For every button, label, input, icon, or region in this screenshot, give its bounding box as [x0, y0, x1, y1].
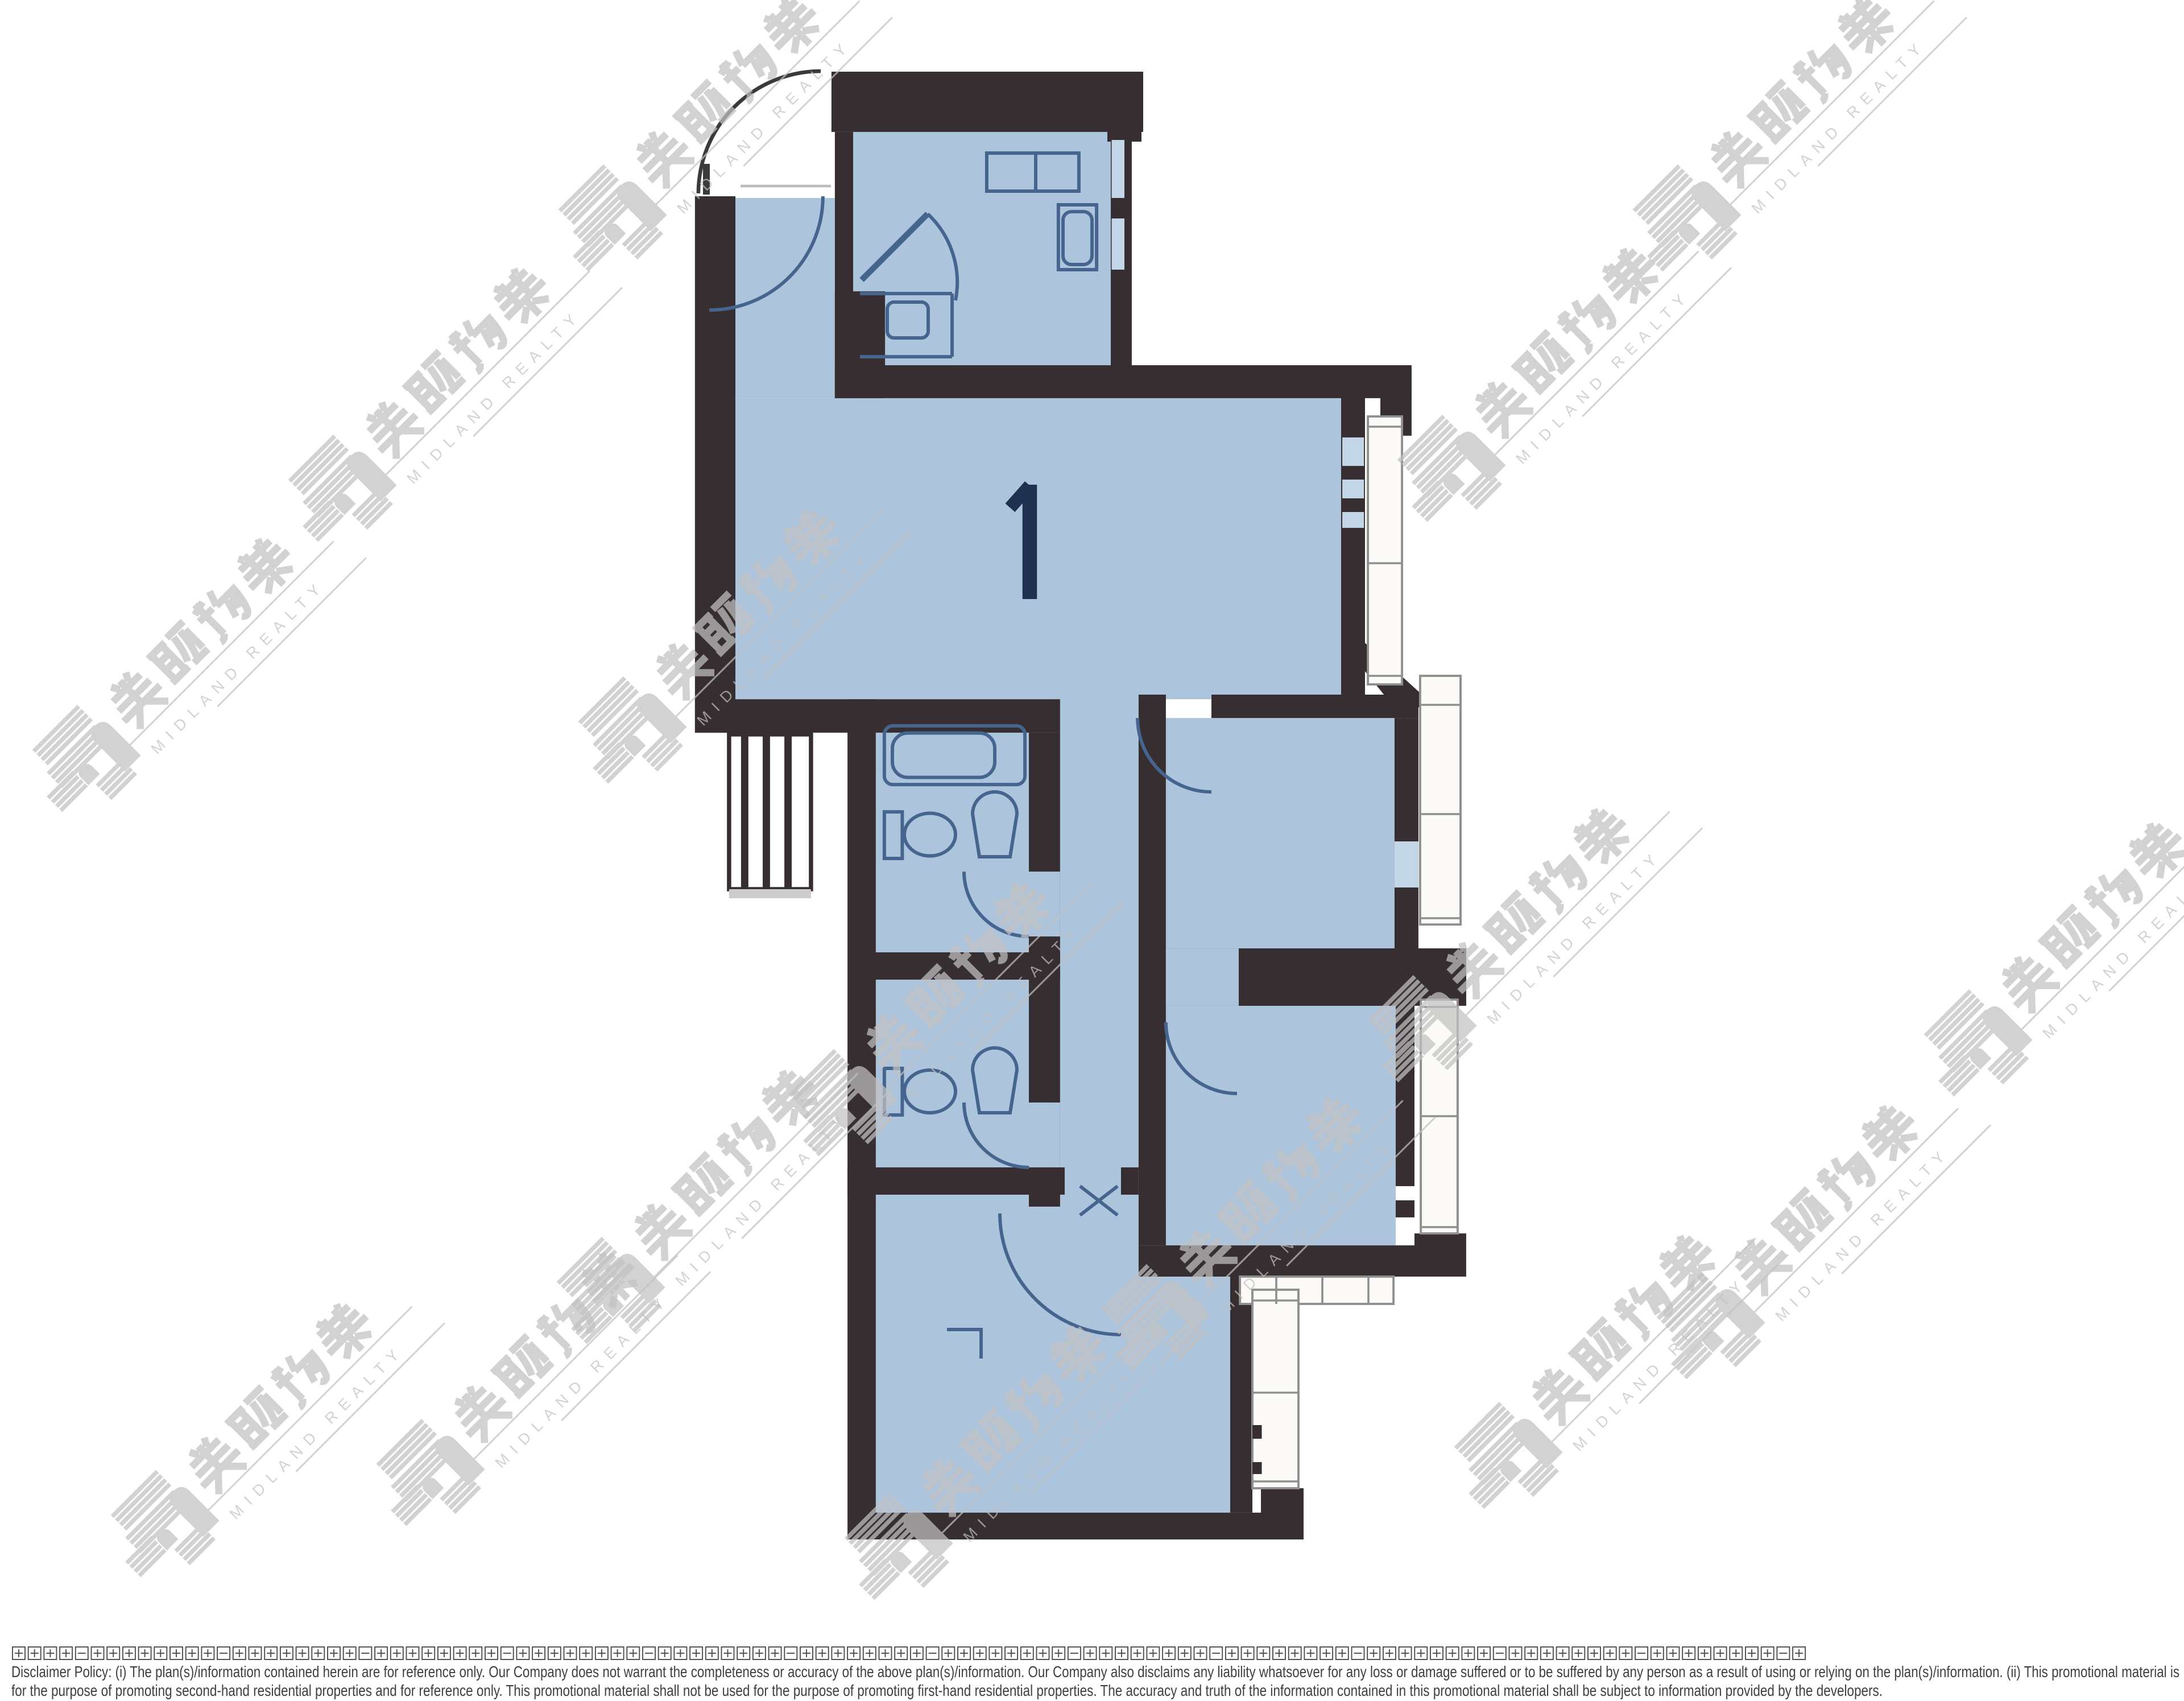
svg-text:for the purpose of promoting s: for the purpose of promoting second-hand… — [11, 1682, 1883, 1699]
svg-text:Disclaimer Policy: (i) The pla: Disclaimer Policy: (i) The plan(s)/infor… — [11, 1663, 2179, 1681]
